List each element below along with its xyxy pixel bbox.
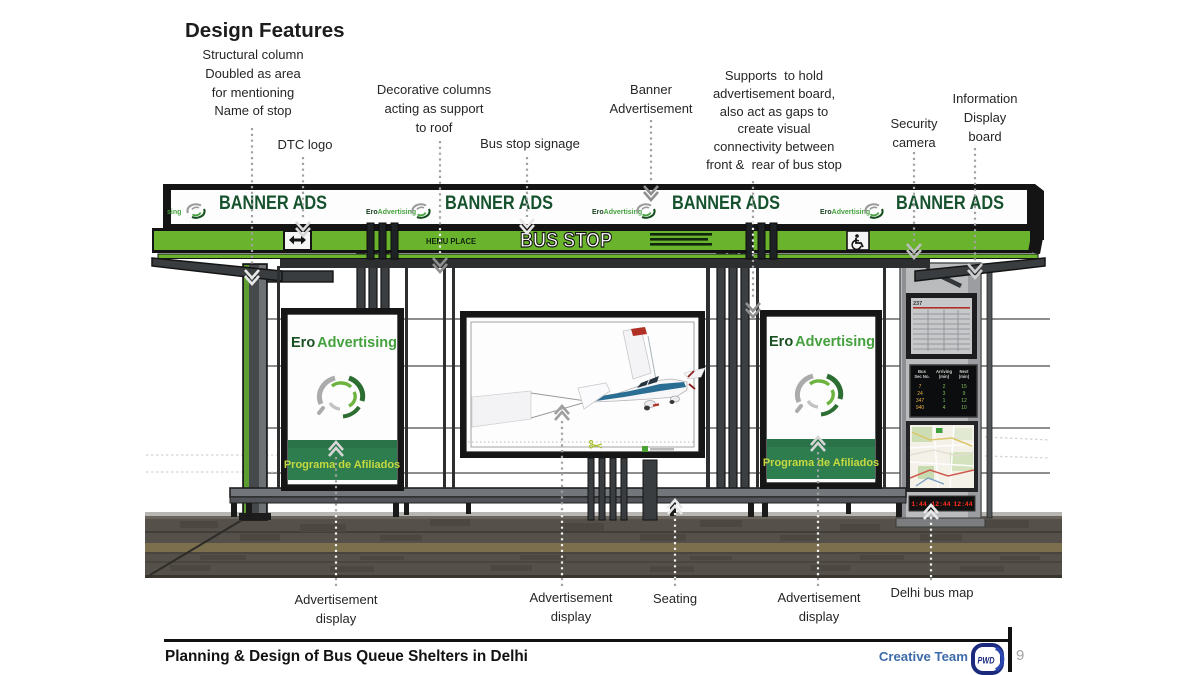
svg-text:PWD: PWD [978, 656, 995, 666]
svg-text:9: 9 [963, 391, 966, 397]
svg-text:EroAdvertising: EroAdvertising [592, 209, 642, 216]
svg-text:12: 12 [961, 398, 967, 404]
svg-text:12:44: 12:44 [953, 501, 972, 508]
svg-text:1:44: 1:44 [911, 501, 927, 508]
svg-text:Programa de Afiliados: Programa de Afiliados [284, 459, 400, 471]
svg-text:EroAdvertising: EroAdvertising [291, 335, 397, 351]
svg-text:940: 940 [916, 405, 925, 411]
svg-text:sing: sing [167, 209, 181, 216]
svg-text:EroAdvertising: EroAdvertising [366, 209, 416, 216]
svg-text:Sec No.: Sec No. [914, 374, 929, 379]
svg-text:Programa de Afiliados: Programa de Afiliados [763, 457, 879, 469]
svg-text:BANNER ADS: BANNER ADS [672, 192, 780, 214]
svg-text:7: 7 [919, 384, 922, 390]
svg-text:1: 1 [943, 398, 946, 404]
svg-text:EroAdvertising: EroAdvertising [769, 334, 875, 350]
svg-text:15: 15 [961, 384, 967, 390]
svg-text:HEMU PLACE: HEMU PLACE [426, 237, 477, 246]
svg-text:EroAdvertising: EroAdvertising [820, 209, 870, 216]
svg-text:(min): (min) [939, 374, 950, 379]
svg-text:24: 24 [917, 391, 923, 397]
svg-text:BANNER ADS: BANNER ADS [445, 192, 553, 214]
svg-text:2: 2 [943, 384, 946, 390]
svg-text:237: 237 [913, 301, 922, 307]
svg-text:3: 3 [943, 391, 946, 397]
svg-text:BANNER ADS: BANNER ADS [219, 192, 327, 214]
svg-text:(min): (min) [959, 374, 970, 379]
svg-text:BANNER ADS: BANNER ADS [896, 192, 1004, 214]
svg-text:BUS STOP: BUS STOP [520, 229, 612, 252]
svg-text:4: 4 [943, 405, 946, 411]
svg-text:10: 10 [961, 405, 967, 411]
svg-text:347: 347 [916, 398, 925, 404]
